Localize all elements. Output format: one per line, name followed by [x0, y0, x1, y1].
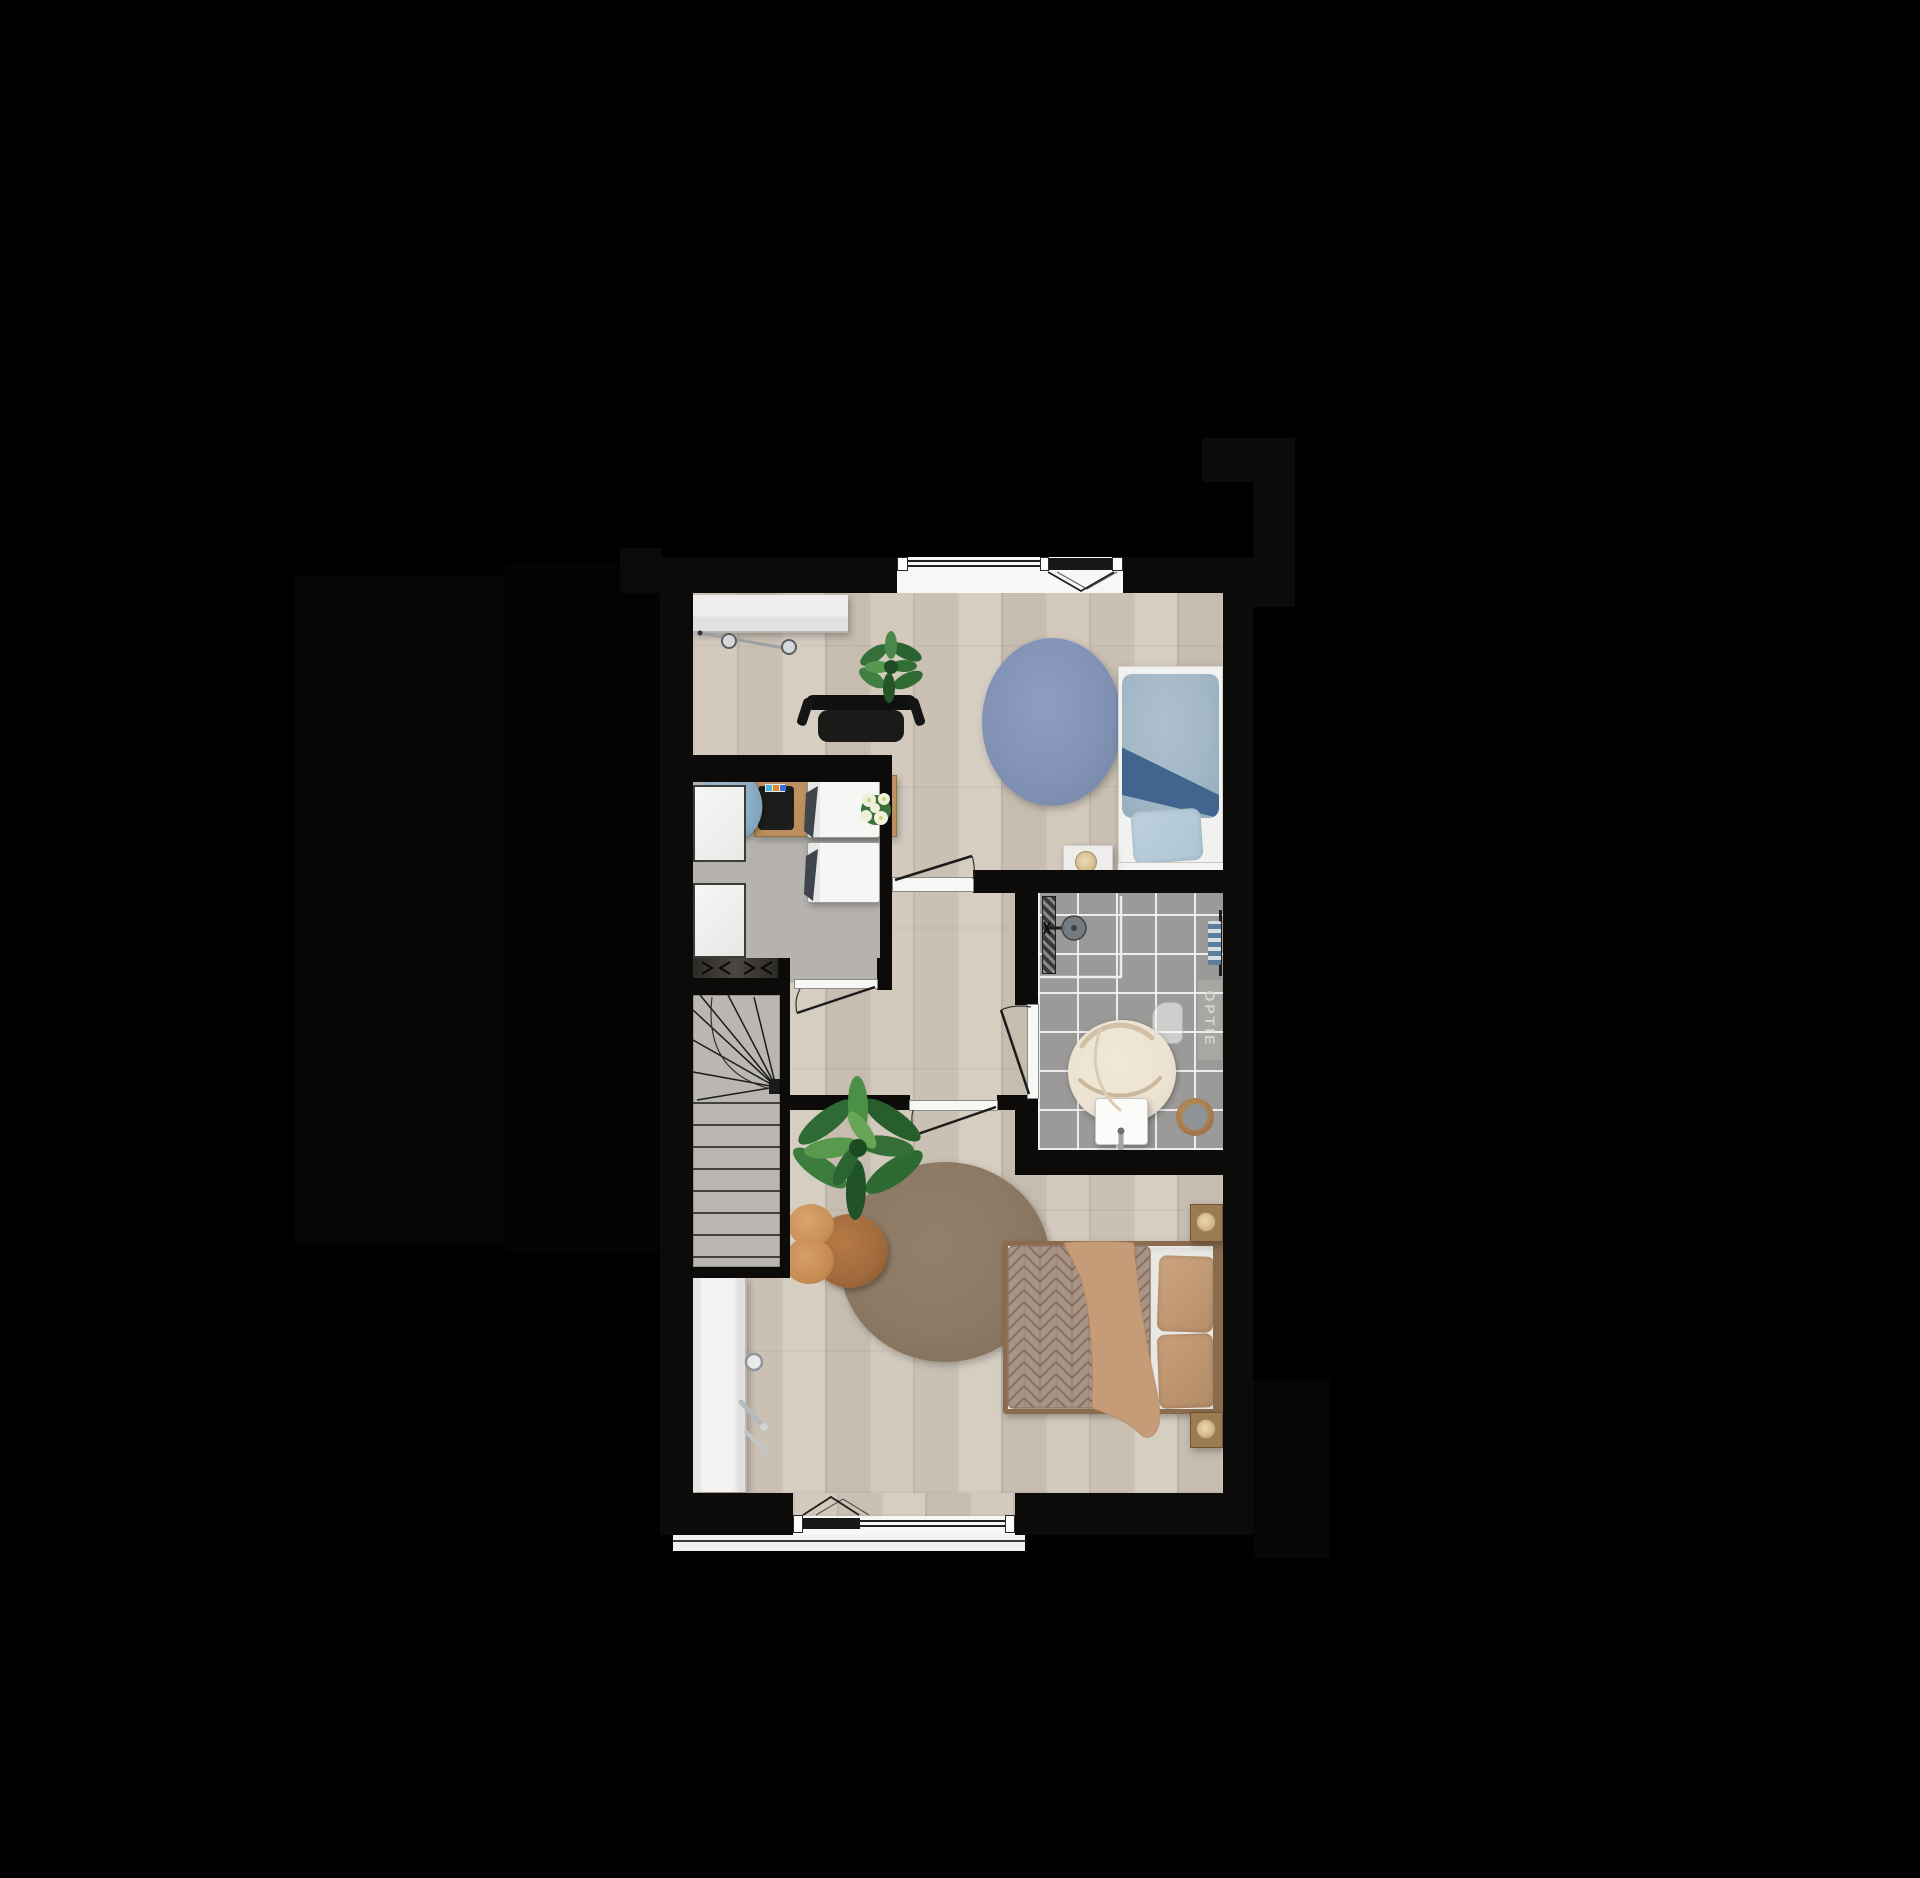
linework-overlay — [0, 0, 1920, 1878]
window-top-opening-icon — [1048, 572, 1117, 591]
window-bottom-opening-icon — [803, 1497, 869, 1515]
desk-flowers-icon — [860, 793, 891, 825]
door-top-bedroom-icon — [895, 856, 974, 880]
dryer-door-icon — [804, 849, 818, 901]
door-bottom-bedroom-icon — [912, 1107, 996, 1135]
track-light-icon — [698, 631, 797, 655]
bath-rug-pattern — [1080, 1025, 1160, 1110]
hatch-chevrons-icon — [702, 962, 772, 974]
plant-bottom-icon — [787, 1076, 928, 1221]
dresser-items-icon — [741, 1354, 768, 1452]
shower-icon — [1040, 896, 1121, 977]
washer-door-icon — [804, 786, 818, 838]
door-closet-icon — [796, 987, 875, 1013]
faucet-icon — [1118, 1128, 1125, 1151]
door-bathroom-icon — [1001, 1006, 1031, 1094]
plant-top-icon — [856, 631, 926, 703]
staircase-icon — [693, 995, 780, 1267]
floor-plan-canvas: OPTIE — [0, 0, 1920, 1878]
